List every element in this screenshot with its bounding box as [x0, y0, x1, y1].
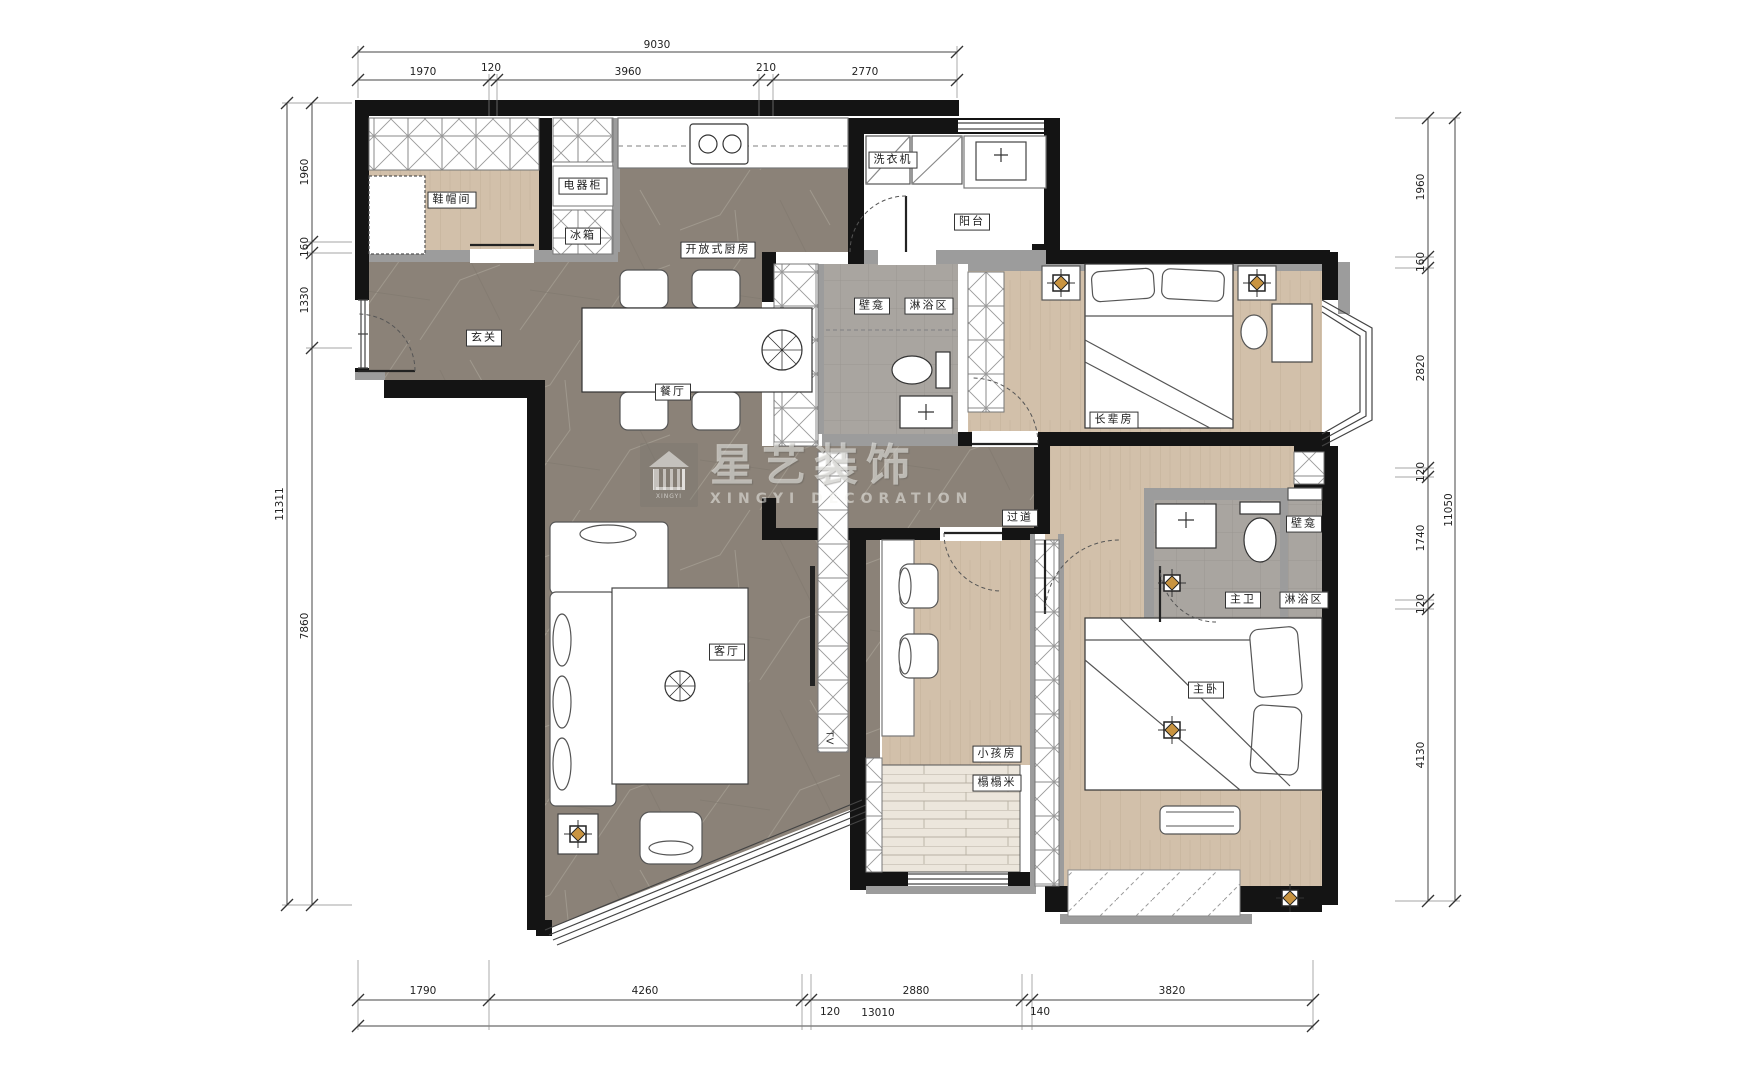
bay-window-seat: [1068, 870, 1240, 916]
room-label-entry: 玄关: [466, 330, 502, 347]
dim-top-total: 9030: [644, 39, 671, 51]
floor-plan-page: 鞋帽间 电器柜 冰箱 开放式厨房 洗衣机 阳台 玄关 餐厅 壁龛 淋浴区 长辈房…: [0, 0, 1756, 1080]
dim-top-seg-4: 2770: [852, 66, 879, 78]
dim-right-seg-2: 2820: [1415, 355, 1427, 382]
dim-left-total: 11311: [274, 487, 286, 520]
dim-right-seg-3: 120: [1415, 462, 1427, 482]
room-label-tatami: 榻榻米: [973, 775, 1022, 792]
dim-left-seg-3: 7860: [299, 613, 311, 640]
room-label-fridge: 冰箱: [565, 228, 601, 245]
dim-left-seg-1: 160: [299, 237, 311, 257]
dim-right-seg-6: 4130: [1415, 742, 1427, 769]
dim-top-seg-1: 120: [481, 62, 501, 74]
room-label-balcony: 阳台: [954, 214, 990, 231]
room-label-shower-2: 淋浴区: [1280, 592, 1329, 609]
dim-right-seg-4: 1740: [1415, 525, 1427, 552]
dim-left-seg-0: 1960: [299, 159, 311, 186]
tv-label: TV: [824, 731, 835, 746]
dim-top-seg-2: 3960: [615, 66, 642, 78]
room-label-open-kitchen: 开放式厨房: [681, 242, 756, 259]
room-label-corridor: 过道: [1002, 510, 1038, 527]
dim-bottom-seg-2: 120: [820, 1006, 840, 1018]
dim-bottom-seg-3: 2880: [903, 985, 930, 997]
room-label-kids-room: 小孩房: [973, 746, 1022, 763]
room-label-shoe-room: 鞋帽间: [428, 192, 477, 209]
dim-bottom-seg-0: 1790: [410, 985, 437, 997]
dim-bottom-seg-5: 3820: [1159, 985, 1186, 997]
room-label-master-bedroom: 主卧: [1188, 682, 1224, 699]
dim-top-seg-0: 1970: [410, 66, 437, 78]
dim-right-total: 11050: [1443, 493, 1455, 526]
room-label-living: 客厅: [709, 644, 745, 661]
room-label-dining: 餐厅: [655, 384, 691, 401]
room-label-washer: 洗衣机: [869, 152, 918, 169]
room-label-niche-2: 壁龛: [1286, 516, 1322, 533]
room-label-elder-room: 长辈房: [1090, 412, 1139, 429]
dim-left-seg-2: 1330: [299, 287, 311, 314]
room-label-shower-1: 淋浴区: [905, 298, 954, 315]
dim-right-seg-1: 160: [1415, 252, 1427, 272]
dim-right-seg-5: 120: [1415, 594, 1427, 614]
dim-top-seg-3: 210: [756, 62, 776, 74]
dim-bottom-seg-1: 4260: [632, 985, 659, 997]
room-label-appliance: 电器柜: [559, 178, 608, 195]
dim-bottom-seg-4: 140: [1030, 1006, 1050, 1018]
dim-right-seg-0: 1960: [1415, 174, 1427, 201]
room-label-niche-1: 壁龛: [854, 298, 890, 315]
room-label-master-bath: 主卫: [1225, 592, 1261, 609]
dim-bottom-total: 13010: [861, 1007, 894, 1019]
